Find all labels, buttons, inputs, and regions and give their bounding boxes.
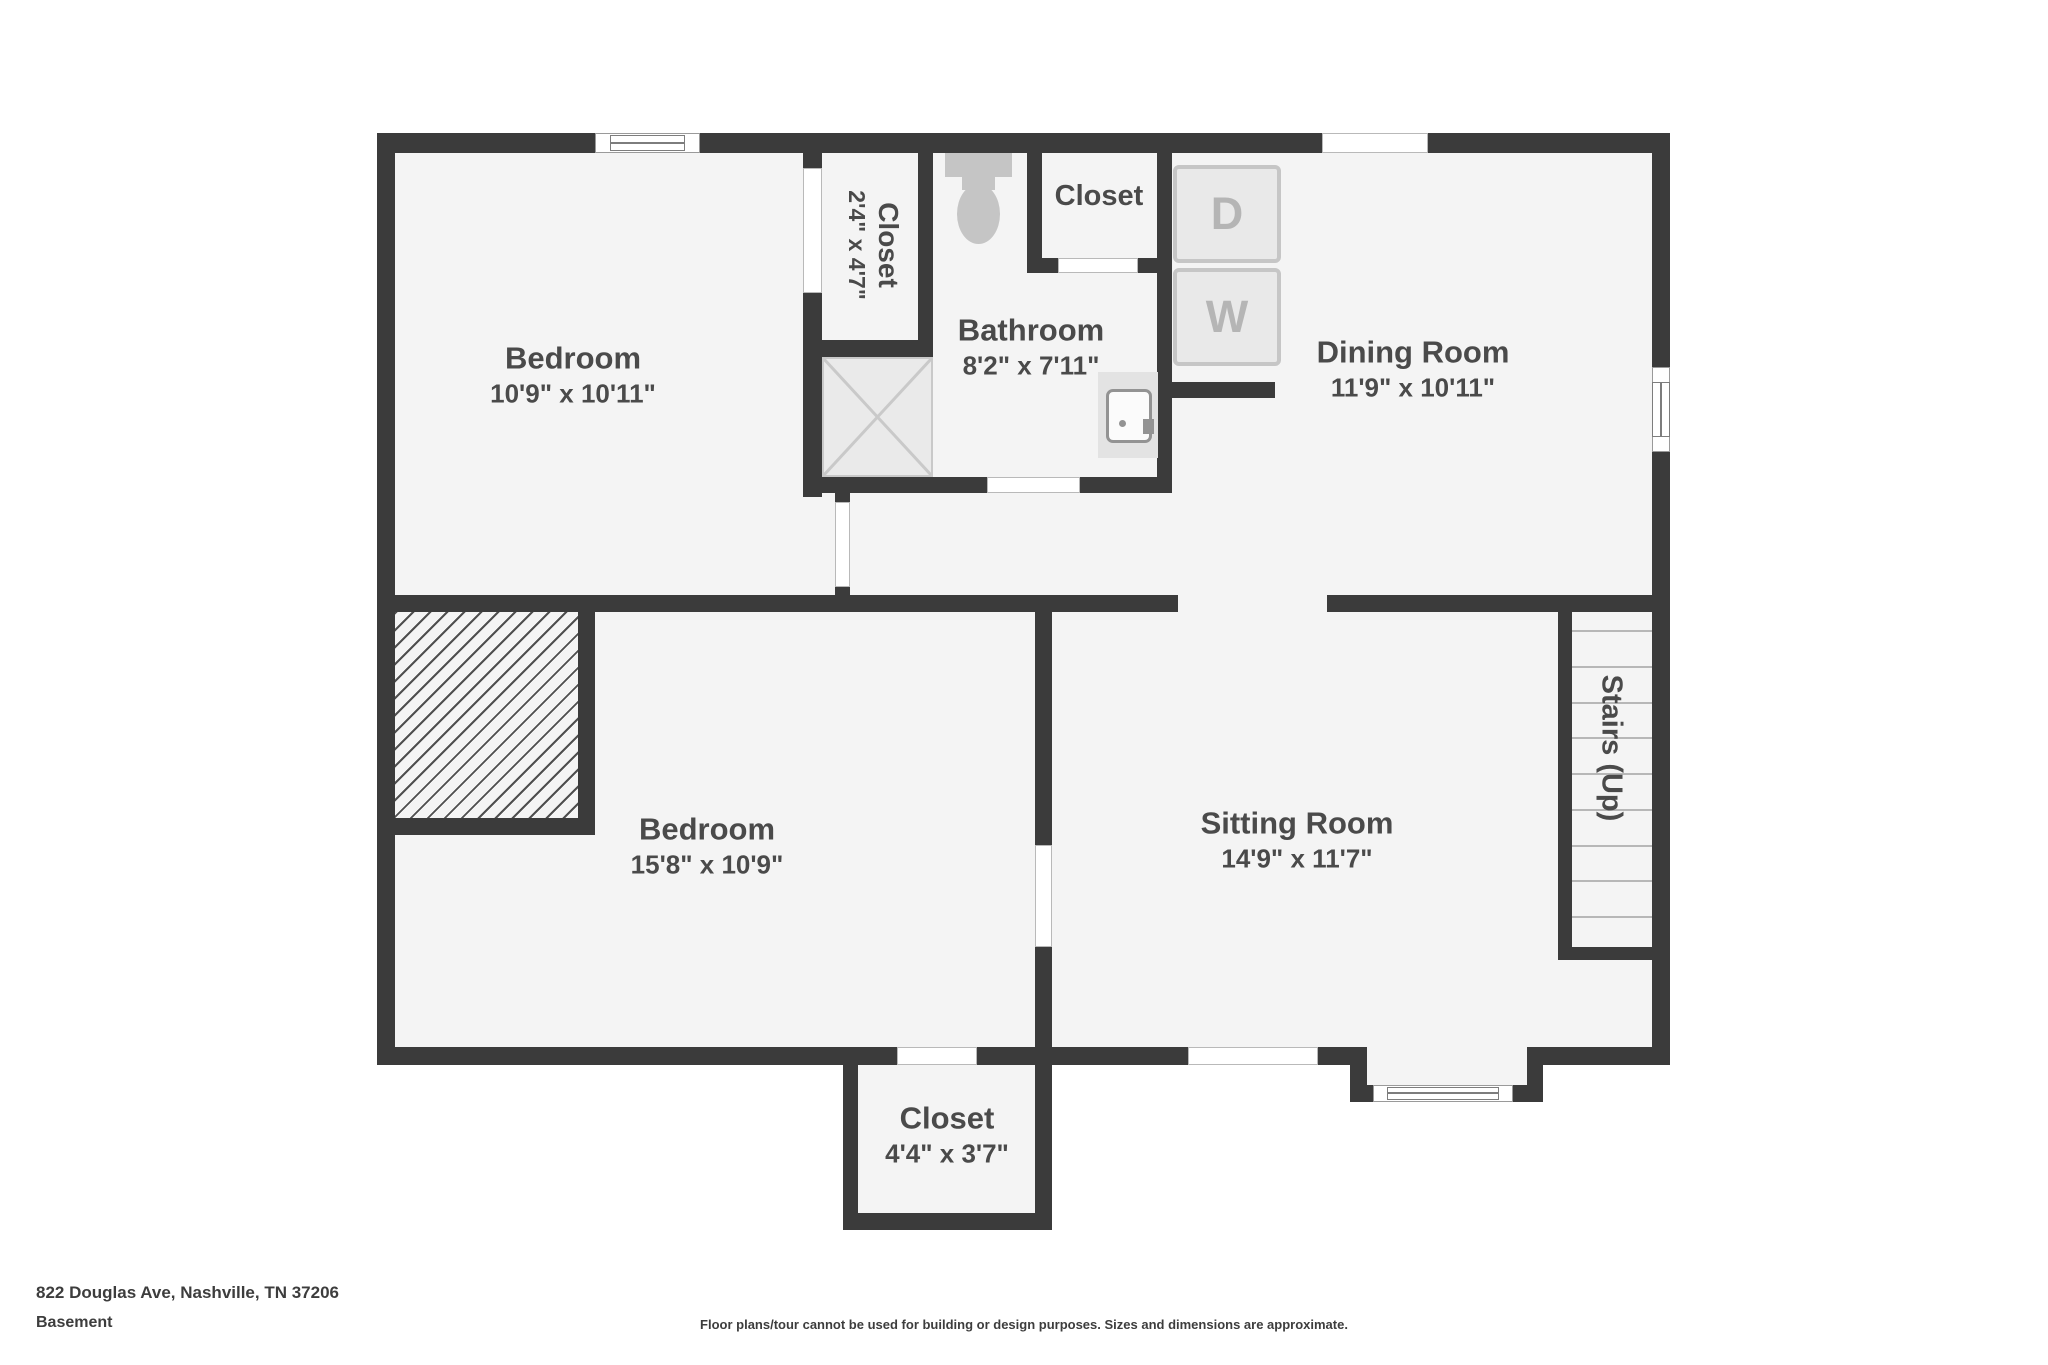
hatched-area xyxy=(395,612,578,818)
wall-middle-left xyxy=(377,595,1178,612)
bathroom-right-wall xyxy=(1157,153,1172,493)
stair-tread xyxy=(1572,916,1652,918)
floor-plan-canvas: D W Bedroom 10'9" x 10'11" Closet 2'4" x… xyxy=(0,0,2048,1365)
wall-middle-right xyxy=(1327,595,1670,612)
bathroom-bottom-wall-l xyxy=(803,477,987,493)
closet-top-label: Closet xyxy=(1055,177,1144,215)
closet-ul-right-wall xyxy=(918,153,933,357)
bedroom-lower-label: Bedroom 15'8" x 10'9" xyxy=(631,811,784,882)
bedroom-upper-label: Bedroom 10'9" x 10'11" xyxy=(490,340,656,411)
wall-bottom-b xyxy=(977,1047,1188,1065)
stair-tread xyxy=(1572,630,1652,632)
laundry-stub-wall xyxy=(1157,382,1275,398)
washer-label: W xyxy=(1206,291,1248,343)
stairs-left-wall xyxy=(1558,612,1572,960)
room-name: Closet xyxy=(885,1100,1009,1138)
sink-basin xyxy=(1106,389,1152,443)
room-name: Bedroom xyxy=(490,340,656,378)
room-name: Bathroom xyxy=(958,312,1104,350)
closet-top-door xyxy=(1058,258,1138,273)
room-dims: 15'8" x 10'9" xyxy=(631,849,784,882)
dining-top-window xyxy=(1322,133,1428,153)
bedroom-upper-window-rail xyxy=(610,142,685,144)
room-name: Closet xyxy=(1055,177,1144,215)
room-dims: 8'2" x 7'11" xyxy=(958,350,1104,383)
wall-bottom-a xyxy=(377,1047,897,1065)
room-name: Stairs (Up) xyxy=(1594,675,1629,822)
bedroom-upper-hall-door xyxy=(835,502,850,587)
bay-wall-bottom-l xyxy=(1350,1085,1373,1102)
closet-top-bottom-wall-l xyxy=(1027,258,1058,273)
sink-drain-dot xyxy=(1119,420,1126,427)
bathroom-door xyxy=(987,477,1080,493)
bay-floor xyxy=(1367,1047,1527,1085)
divider-wall-bottom xyxy=(1035,947,1052,1065)
bottom-closet-left-wall xyxy=(843,1065,858,1230)
divider-wall-top xyxy=(1035,612,1052,845)
closet-ul-bottom-wall xyxy=(803,340,933,357)
bottom-closet-right-wall xyxy=(1035,1065,1052,1230)
room-name: Bedroom xyxy=(631,811,784,849)
room-dims: 2'4" x 4'7" xyxy=(842,190,871,300)
closet-top-left-wall xyxy=(1027,153,1042,273)
closet-ul-door xyxy=(803,168,822,293)
dining-right-window-rail xyxy=(1660,382,1662,437)
wall-bottom-d xyxy=(1527,1047,1670,1065)
sitting-bottom-window xyxy=(1188,1047,1318,1065)
room-name: Dining Room xyxy=(1317,334,1510,372)
bedroom-sitting-door xyxy=(1035,845,1052,947)
bottom-closet-bottom-wall xyxy=(843,1213,1050,1230)
bedroom-upper-right-wall-a xyxy=(803,153,822,168)
footer-disclaimer: Floor plans/tour cannot be used for buil… xyxy=(0,1317,2048,1332)
stair-tread xyxy=(1572,845,1652,847)
room-dims: 11'9" x 10'11" xyxy=(1317,372,1510,405)
room-name: Closet xyxy=(871,190,906,300)
bay-wall-right xyxy=(1527,1047,1543,1102)
stairs-label: Stairs (Up) xyxy=(1594,675,1629,822)
dryer-label: D xyxy=(1211,188,1244,240)
bottom-closet-door xyxy=(897,1047,977,1065)
toilet-icon xyxy=(945,153,1012,177)
sink-faucet xyxy=(1143,419,1154,434)
room-dims: 14'9" x 11'7" xyxy=(1201,843,1394,876)
stairs-bottom-wall xyxy=(1558,947,1670,960)
dryer-box: D xyxy=(1173,165,1281,263)
hatch-right-wall xyxy=(578,595,595,835)
room-dims: 4'4" x 3'7" xyxy=(885,1138,1009,1171)
room-name: Sitting Room xyxy=(1201,805,1394,843)
toilet-bowl xyxy=(957,184,1000,244)
bay-window-rail xyxy=(1387,1092,1499,1094)
wall-top xyxy=(377,133,1670,153)
hatch-bottom-wall xyxy=(377,818,595,835)
stair-tread xyxy=(1572,666,1652,668)
bedroom-upper-right-wall-b xyxy=(803,293,822,497)
washer-box: W xyxy=(1173,268,1281,366)
closet-upper-left-label: Closet 2'4" x 4'7" xyxy=(842,190,906,300)
closet-bottom-label: Closet 4'4" x 3'7" xyxy=(885,1100,1009,1171)
footer-address: 822 Douglas Ave, Nashville, TN 37206 xyxy=(36,1283,339,1303)
hall-door-stub-bottom xyxy=(835,587,850,595)
stair-tread xyxy=(1572,880,1652,882)
hall-door-stub-top xyxy=(835,493,850,502)
room-dims: 10'9" x 10'11" xyxy=(490,378,656,411)
shower-icon xyxy=(822,357,933,477)
sitting-room-label: Sitting Room 14'9" x 11'7" xyxy=(1201,805,1394,876)
dining-room-label: Dining Room 11'9" x 10'11" xyxy=(1317,334,1510,405)
bathroom-label: Bathroom 8'2" x 7'11" xyxy=(958,312,1104,383)
